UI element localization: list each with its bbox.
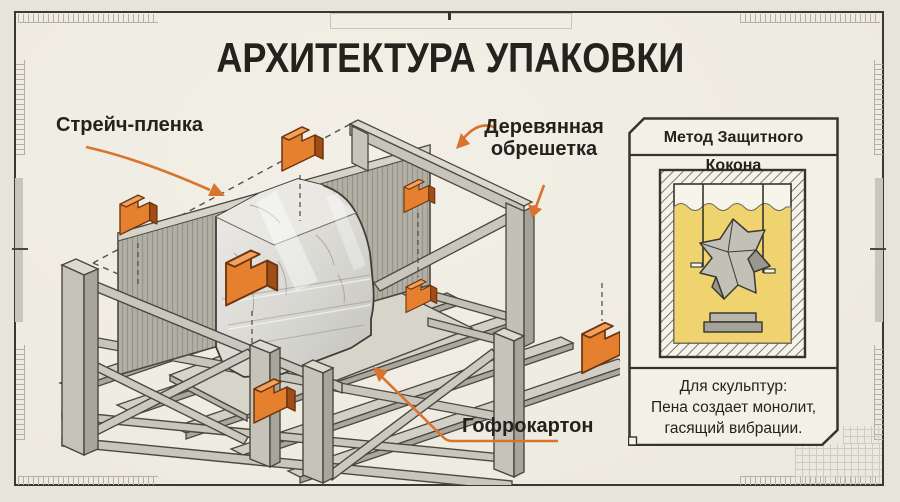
panel-caption-line3: гасящий вибрации.	[634, 418, 833, 439]
right-edge-bar	[875, 178, 883, 322]
label-cardboard: Гофрокартон	[462, 415, 593, 437]
graph-grid-patch	[795, 444, 882, 484]
ruler-ticks-top-right	[740, 14, 880, 23]
panel-caption-line1: Для скульптур:	[634, 376, 833, 397]
page-title: АРХИТЕКТУРА УПАКОВКИ	[0, 38, 900, 81]
top-center-mark	[448, 12, 451, 20]
crate-arrow-2	[536, 185, 544, 207]
corner-protector-float-top	[282, 127, 323, 171]
top-margin-tab	[330, 13, 572, 29]
stretch-film-arrow	[86, 147, 210, 190]
cocoon-illustration	[660, 170, 805, 357]
panel-title: Метод Защитного Кокона	[638, 124, 829, 152]
cocoon-method-panel: Метод Защитного Кокона Для скульптур: Пе…	[628, 117, 839, 446]
label-wooden-crate-line1: Деревянная	[478, 116, 610, 138]
label-wooden-crate: Деревянная обрешетка	[478, 116, 610, 160]
graph-grid-patch-upper	[843, 426, 882, 444]
label-wooden-crate-line2: обрешетка	[478, 138, 610, 160]
right-edge-mark	[870, 248, 886, 250]
panel-caption-line2: Пена создает монолит,	[634, 397, 833, 418]
panel-caption: Для скульптур: Пена создает монолит, гас…	[634, 376, 833, 439]
ruler-ticks-top-left	[18, 14, 158, 23]
infographic-page: { "title": "АРХИТЕКТУРА УПАКОВКИ", "diag…	[0, 0, 900, 502]
label-stretch-film: Стрейч-пленка	[56, 114, 203, 136]
